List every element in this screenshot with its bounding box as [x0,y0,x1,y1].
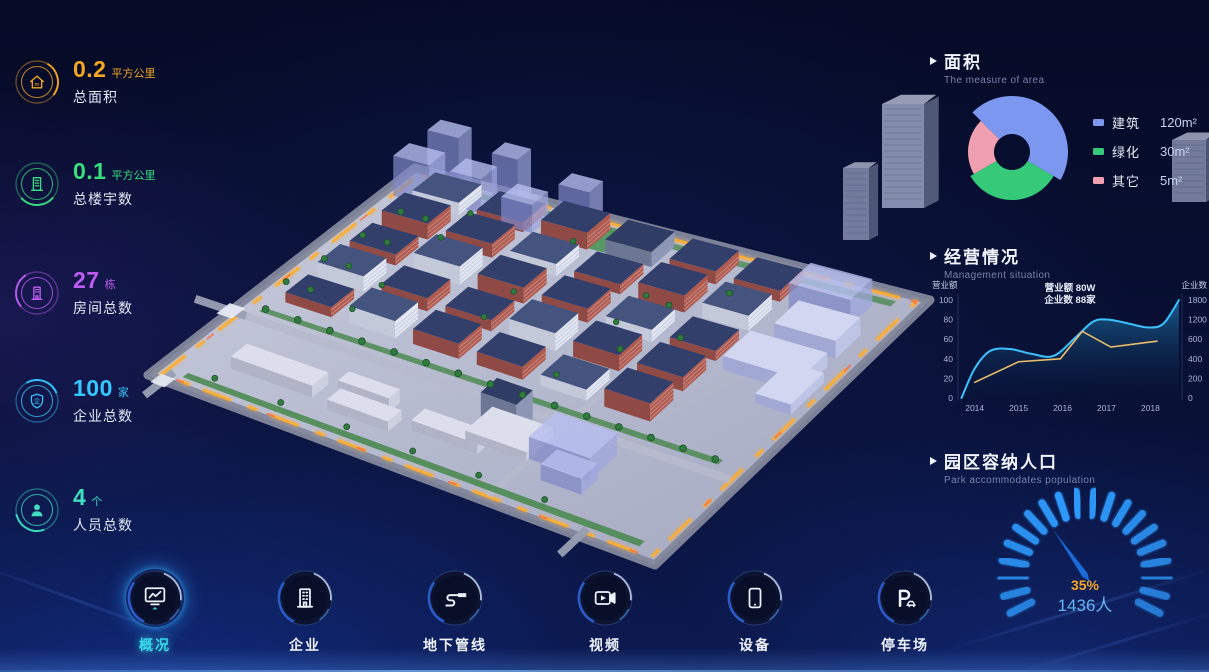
nav-item-device[interactable]: 设备 [700,569,810,655]
video-camera-icon [576,569,634,627]
svg-text:2016: 2016 [1053,403,1072,413]
triangle-marker [930,457,937,465]
management-panel-title: 经营情况 [944,243,1020,268]
home-icon: m [14,59,60,105]
device-tablet-icon [726,569,784,627]
svg-text:2014: 2014 [965,403,984,413]
management-line-chart: 营业额企业数0204060801000200400600120018002014… [930,278,1209,416]
svg-text:0: 0 [1188,393,1193,403]
stat-total-buildings: 0.1平方公里 总楼宇数 [14,158,155,209]
legend-label: 建筑 [1112,113,1148,132]
legend-row: 其它 5m² [1093,166,1209,195]
stat-value: 4 [73,484,86,510]
svg-text:200: 200 [1188,373,1202,383]
underground-pipeline-icon [426,569,484,627]
enterprise-building-icon [276,569,334,627]
svg-text:1800: 1800 [1188,295,1207,305]
svg-text:0: 0 [948,393,953,403]
svg-text:400: 400 [1188,354,1202,364]
stat-value: 0.2 [73,56,106,82]
svg-text:营业额: 营业额 [932,280,958,290]
stat-label: 企业总数 [73,406,133,426]
svg-text:20: 20 [944,373,954,383]
management-panel: 经营情况 Management situation [930,243,1209,281]
legend-swatch [1093,148,1104,155]
svg-text:2017: 2017 [1097,403,1116,413]
stat-total-rooms: 27栋 房间总数 [14,267,133,318]
stat-unit: 平方公里 [111,68,155,80]
triangle-marker [930,252,937,260]
building-icon [14,161,60,207]
tower-icon [14,270,60,316]
smart-park-dashboard: m 0.2平方公里 总面积 0.1平方公里 总楼宇数 [0,0,1209,672]
population-gauge-chart: 35%1436人 [955,478,1209,646]
svg-text:2015: 2015 [1009,403,1028,413]
stat-label: 总面积 [73,87,155,107]
legend-value: 5m² [1160,173,1182,188]
nav-item-parking[interactable]: 停车场 [850,569,960,655]
nav-label: 视频 [550,635,660,655]
area-donut-chart [930,83,1100,223]
svg-text:营业额 80W: 营业额 80W [1045,282,1096,294]
overview-monitor-icon [126,569,184,627]
legend-row: 绿化 30m² [1093,137,1209,166]
legend-value: 30m² [1160,144,1190,159]
svg-text:600: 600 [1188,334,1202,344]
svg-text:100: 100 [939,295,953,305]
area-legend: 建筑 120m² 绿化 30m² 其它 5m² [1093,108,1209,195]
stat-total-companies: 企 100家 企业总数 [14,375,133,426]
legend-row: 建筑 120m² [1093,108,1209,137]
nav-label: 概况 [100,635,210,655]
triangle-marker [930,57,937,65]
population-panel-title: 园区容纳人口 [944,448,1058,473]
stat-total-people: 4个 人员总数 [14,484,133,535]
nav-item-video[interactable]: 视频 [550,569,660,655]
svg-text:m: m [35,81,40,87]
svg-text:企业数 88家: 企业数 88家 [1043,294,1096,306]
nav-label: 停车场 [850,635,960,655]
stat-label: 人员总数 [73,515,133,535]
svg-text:80: 80 [944,315,954,325]
person-icon [14,487,60,533]
svg-text:1200: 1200 [1188,315,1207,325]
stat-value: 0.1 [73,158,106,184]
stat-unit: 栋 [105,279,116,291]
stat-label: 总楼宇数 [73,189,155,209]
legend-value: 120m² [1160,115,1197,130]
stat-unit: 平方公里 [111,170,155,182]
nav-item-pipeline[interactable]: 地下管线 [400,569,510,655]
stat-unit: 家 [118,387,129,399]
stat-unit: 个 [91,496,102,508]
area-panel: 面积 The measure of area [930,48,1209,86]
nav-label: 企业 [250,635,360,655]
svg-text:企业数: 企业数 [1181,280,1207,290]
legend-label: 其它 [1112,171,1148,190]
parking-icon [876,569,934,627]
legend-swatch [1093,177,1104,184]
legend-swatch [1093,119,1104,126]
svg-text:60: 60 [944,334,954,344]
svg-text:35%: 35% [1071,577,1100,593]
nav-item-enterprise[interactable]: 企业 [250,569,360,655]
stat-total-area: m 0.2平方公里 总面积 [14,56,155,107]
svg-text:40: 40 [944,354,954,364]
nav-label: 设备 [700,635,810,655]
stat-value: 100 [73,375,113,401]
area-panel-title: 面积 [944,48,982,73]
legend-label: 绿化 [1112,142,1148,161]
svg-text:企: 企 [34,395,41,404]
nav-item-overview[interactable]: 概况 [100,569,210,655]
stat-value: 27 [73,267,100,293]
svg-text:2018: 2018 [1141,403,1160,413]
stat-label: 房间总数 [73,298,133,318]
svg-text:1436人: 1436人 [1058,596,1113,615]
nav-label: 地下管线 [400,635,510,655]
shield-icon: 企 [14,378,60,424]
